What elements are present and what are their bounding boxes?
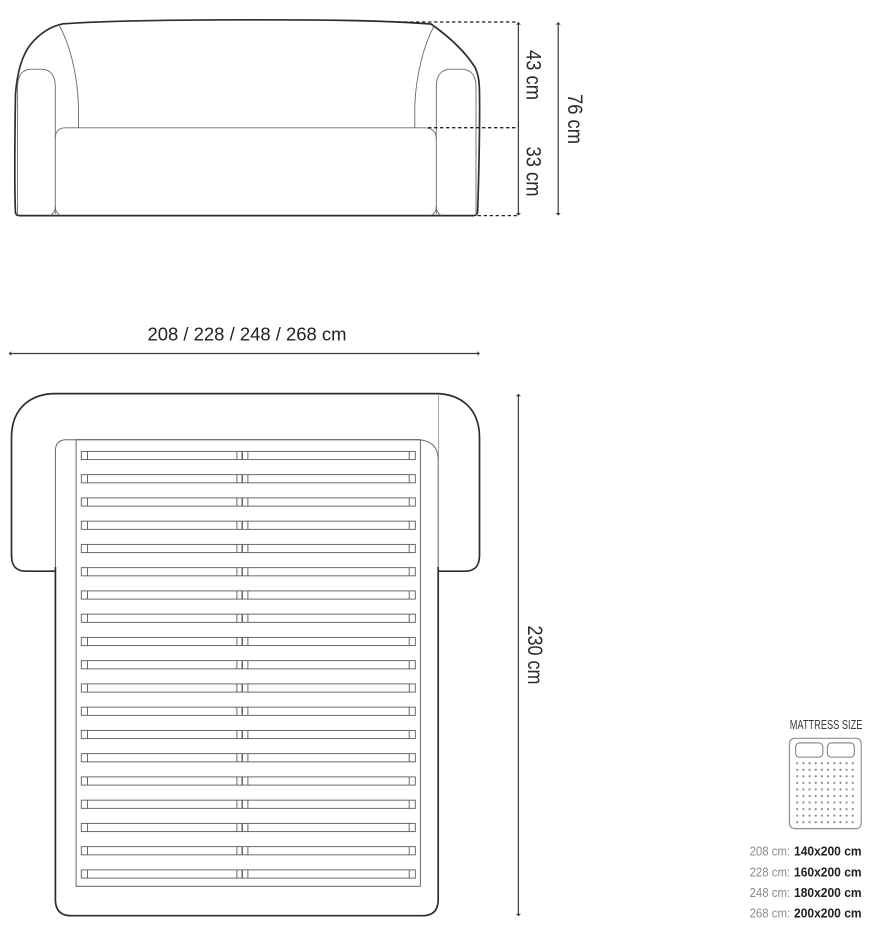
svg-text:76 cm: 76 cm (563, 94, 587, 144)
svg-text:248 cm:: 248 cm: (750, 885, 791, 900)
svg-text:208 / 228 / 248 / 268 cm: 208 / 228 / 248 / 268 cm (148, 324, 347, 345)
svg-text:208 cm:: 208 cm: (750, 844, 791, 859)
svg-text:180x200 cm: 180x200 cm (794, 885, 862, 900)
svg-text:MATTRESS SIZE: MATTRESS SIZE (790, 718, 863, 732)
svg-text:140x200 cm: 140x200 cm (794, 844, 862, 859)
svg-text:160x200 cm: 160x200 cm (794, 864, 862, 879)
svg-text:200x200 cm: 200x200 cm (794, 906, 862, 921)
svg-text:230 cm: 230 cm (523, 626, 546, 685)
svg-text:268 cm:: 268 cm: (750, 906, 791, 921)
svg-text:228 cm:: 228 cm: (750, 864, 791, 879)
svg-text:43 cm: 43 cm (522, 50, 546, 100)
svg-text:33 cm: 33 cm (522, 147, 546, 197)
